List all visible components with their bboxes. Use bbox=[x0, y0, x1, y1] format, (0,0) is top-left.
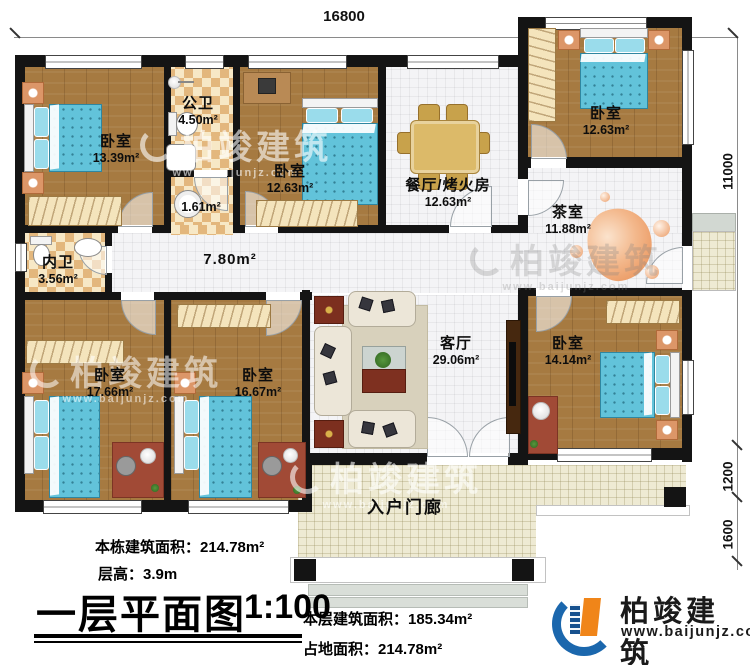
stat-floor-area: 本层建筑面积：185.34m² bbox=[303, 608, 472, 629]
bed-headboard bbox=[24, 104, 34, 172]
porch-step bbox=[308, 597, 528, 608]
floor-plan-page: 16800 11000 1200 1600 bbox=[0, 0, 750, 665]
wardrobe bbox=[177, 304, 271, 328]
end-table bbox=[314, 296, 344, 324]
desk-lamp bbox=[532, 402, 550, 420]
bed-pillow bbox=[34, 400, 49, 434]
desk-lamp bbox=[283, 448, 298, 463]
room-label-basin: 1.61m² bbox=[166, 200, 236, 214]
bed-pillow bbox=[34, 436, 49, 470]
end-table bbox=[314, 420, 344, 448]
dim-top-width: 16800 bbox=[314, 8, 374, 25]
company-logo: 柏竣建筑 www.baijunjz.com bbox=[550, 586, 750, 656]
nightstand bbox=[558, 30, 580, 50]
room-label-tearoom: 茶室 11.88m² bbox=[516, 205, 620, 236]
room-label-bedroom-topleft: 卧室 13.39m² bbox=[66, 134, 166, 165]
page-title: 一层平面图 bbox=[36, 582, 246, 640]
coffee-table bbox=[362, 369, 406, 393]
porch-edge bbox=[290, 557, 546, 583]
door-opening bbox=[121, 292, 154, 300]
wardrobe bbox=[28, 196, 122, 226]
wardrobe bbox=[528, 28, 556, 122]
bed-pillow bbox=[34, 139, 49, 169]
tea-decor-dot bbox=[570, 245, 583, 258]
bed-headboard bbox=[174, 396, 184, 474]
bed-pillow bbox=[34, 107, 49, 137]
stat-total-building-area: 本栋建筑面积：214.78m² bbox=[95, 536, 264, 557]
door-opening bbox=[536, 288, 570, 296]
bed-sheet bbox=[50, 396, 59, 495]
door-opening bbox=[194, 170, 227, 177]
logo-url: www.baijunjz.com bbox=[621, 624, 750, 640]
porch-column bbox=[512, 559, 534, 581]
wall-int bbox=[164, 296, 171, 502]
porch-column bbox=[664, 487, 686, 507]
window bbox=[45, 55, 142, 69]
porch-column bbox=[294, 559, 316, 581]
dim-right-lower: 1600 bbox=[721, 495, 736, 575]
shower-arm bbox=[178, 81, 194, 83]
bed-pillow bbox=[184, 400, 199, 434]
bed-sheet bbox=[200, 396, 209, 495]
bed-pillow bbox=[655, 386, 670, 415]
bed-sheet bbox=[644, 352, 652, 415]
room-label-porch: 入户门廊 bbox=[340, 498, 470, 517]
wall-int bbox=[378, 60, 386, 232]
plant bbox=[293, 486, 301, 494]
room-label-corridor: 7.80m² bbox=[180, 252, 280, 269]
wardrobe bbox=[606, 300, 680, 324]
sofa bbox=[348, 410, 416, 448]
nightstand bbox=[648, 30, 670, 50]
bed-headboard bbox=[24, 396, 34, 474]
sofa-cushion bbox=[381, 299, 395, 313]
desk-chair bbox=[262, 456, 282, 476]
window bbox=[248, 55, 347, 69]
room-label-bedroom-botright: 卧室 14.14m² bbox=[514, 336, 622, 367]
tea-decor-dot bbox=[645, 265, 659, 279]
dining-table bbox=[410, 120, 480, 174]
plant bbox=[530, 440, 538, 448]
bed-headboard bbox=[670, 352, 680, 418]
nightstand bbox=[174, 372, 196, 394]
bed-headboard bbox=[302, 98, 378, 108]
desk-lamp bbox=[140, 448, 156, 464]
room-label-bedroom-topright: 卧室 12.63m² bbox=[556, 106, 656, 137]
bed-pillow bbox=[341, 108, 373, 123]
bed-pillow bbox=[584, 38, 614, 53]
door-opening bbox=[682, 246, 692, 290]
floor-terrace bbox=[692, 231, 736, 291]
sofa-cushion bbox=[361, 421, 375, 435]
window bbox=[557, 448, 652, 462]
nightstand bbox=[656, 330, 678, 350]
bed-sheet bbox=[302, 124, 376, 133]
table-plant bbox=[375, 352, 391, 368]
stat-floor-height: 层高：3.9m bbox=[98, 563, 177, 584]
wardrobe bbox=[256, 200, 358, 227]
room-label-bedroom-botmid: 卧室 16.67m² bbox=[208, 368, 308, 399]
bed-sheet bbox=[580, 54, 645, 62]
room-label-bedroom-botleft: 卧室 17.66m² bbox=[60, 368, 160, 399]
window bbox=[407, 55, 499, 69]
door-opening bbox=[266, 292, 300, 300]
room-label-bedroom-topmid: 卧室 12.63m² bbox=[240, 164, 340, 195]
tea-decor-dot bbox=[653, 220, 670, 237]
bed-pillow bbox=[615, 38, 645, 53]
bed-pillow bbox=[655, 355, 670, 384]
room-label-bathroom-public: 公卫 4.50m² bbox=[166, 96, 230, 127]
room-label-living: 客厅 29.06m² bbox=[406, 336, 506, 367]
window bbox=[682, 360, 694, 415]
title-underline bbox=[34, 634, 302, 643]
dim-right-total: 11000 bbox=[721, 132, 736, 212]
window bbox=[43, 500, 142, 514]
nightstand bbox=[22, 172, 44, 194]
desk-chair bbox=[116, 456, 136, 476]
shower-tray bbox=[166, 144, 196, 171]
window bbox=[682, 50, 694, 145]
bed-pillow bbox=[306, 108, 338, 123]
porch-step bbox=[308, 584, 528, 596]
stat-footprint-area: 占地面积：214.78m² bbox=[303, 638, 442, 659]
terrace-roof-strip bbox=[692, 213, 736, 233]
nightstand bbox=[22, 372, 44, 394]
right-dimension-line bbox=[737, 37, 738, 570]
window bbox=[185, 55, 224, 69]
nightstand bbox=[656, 420, 678, 440]
nightstand bbox=[22, 82, 44, 104]
bed-sheet bbox=[50, 104, 59, 169]
bed-headboard bbox=[580, 28, 648, 38]
laptop bbox=[258, 78, 276, 94]
opening-basin bbox=[171, 225, 233, 235]
tea-decor-dot bbox=[600, 192, 610, 202]
bed-pillow bbox=[184, 436, 199, 470]
logo-building-blue-icon bbox=[570, 604, 580, 634]
room-label-dining: 餐厅/烤火房 12.63m² bbox=[390, 178, 506, 209]
window bbox=[188, 500, 289, 514]
wardrobe bbox=[26, 340, 124, 364]
room-label-bathroom-private: 内卫 3.56m² bbox=[18, 255, 98, 286]
plant bbox=[151, 484, 159, 492]
